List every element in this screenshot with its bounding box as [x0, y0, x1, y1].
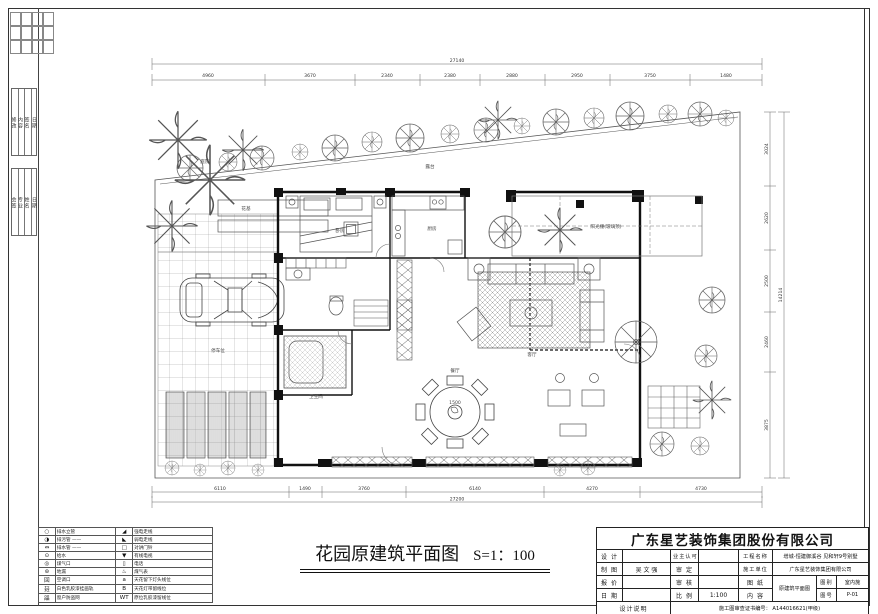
draft-value: 吴 文 强	[623, 563, 671, 576]
svg-text:1490: 1490	[299, 486, 311, 492]
dim-top-labels: 4960 3670 2340 2380 2880 2950 3750 1480 …	[202, 58, 732, 79]
design-label: 设 计	[597, 550, 623, 563]
svg-text:花基: 花基	[241, 205, 251, 212]
approve-label: 审 定	[671, 563, 699, 576]
drawing-title-text: 花园原建筑平面图	[315, 544, 459, 564]
project-value: 增城-恒建御溪谷 见和轩9号别墅	[773, 550, 869, 563]
svg-text:4960: 4960	[202, 73, 214, 79]
company-name: 广东星艺装饰集团股份有限公司	[597, 528, 869, 550]
legend-row: ⇔ 排水管 —— □ 对讲门铃	[39, 544, 213, 552]
svg-text:27200: 27200	[450, 497, 465, 503]
svg-text:27140: 27140	[450, 58, 465, 64]
cable-tv-icon: ▼	[116, 552, 133, 560]
draft-label: 制 图	[597, 563, 623, 576]
svg-text:2380: 2380	[444, 73, 456, 79]
category-value: 室内施	[837, 576, 869, 589]
unit-value: 广东星艺装饰集团有限公司	[773, 563, 869, 576]
dim-bottom-labels: 6110 1490 3760 6140 4270 4730 27200	[214, 486, 707, 503]
carport-units	[166, 392, 266, 458]
svg-text:2500: 2500	[764, 275, 770, 287]
category-label: 图别	[817, 576, 837, 589]
quote-label: 报 价	[597, 576, 623, 589]
svg-text:卫生间: 卫生间	[309, 393, 323, 400]
svg-text:1480: 1480	[720, 73, 732, 79]
floor-drain-icon: ⊚	[39, 568, 56, 576]
svg-text:3760: 3760	[358, 486, 370, 492]
telephone-icon: ▯	[116, 560, 133, 568]
sheet-content-value: 原建筑平面图	[773, 576, 817, 602]
date-value	[623, 589, 671, 602]
hall-cabinets	[286, 258, 388, 326]
svg-text:4270: 4270	[586, 486, 598, 492]
cert-label: 施工图审查证书编号：	[719, 606, 771, 612]
legend-row: 㠭 白色乳胶漆挂画轨 B 天花灯带留线位	[39, 585, 213, 594]
legend-table: ○ 排水立管 ◢ 强电走线 ◑ 排污管 —— ◣ 弱电走线 ⇔ 排水管 —— □…	[38, 527, 213, 603]
sheetno-label: 图号	[817, 589, 837, 602]
legend-row: ⊚ 地漏 ♨ 煤气表	[39, 568, 213, 576]
power-line-icon: ◢	[116, 528, 133, 536]
svg-text:餐厅: 餐厅	[450, 367, 460, 374]
svg-text:3750: 3750	[644, 73, 656, 79]
kitchen-counter	[392, 196, 464, 256]
latex-paint-icon: WT	[116, 594, 133, 603]
cert-value: A144016621(甲级)	[772, 606, 820, 612]
legend-row: ◎ 煤气口 ▯ 电话	[39, 560, 213, 568]
quote-value	[623, 576, 671, 589]
legend-row: 㗊 窗户防盗网 WT 原位乳胶漆留线位	[39, 594, 213, 603]
bed	[286, 196, 386, 252]
svg-text:停车位: 停车位	[211, 347, 225, 354]
sewage-pipe-icon: ◑	[39, 536, 56, 544]
svg-text:2620: 2620	[764, 212, 770, 224]
parasol	[615, 321, 657, 363]
scale-value: 1:100	[699, 589, 739, 602]
light-band-icon: B	[116, 585, 133, 594]
sheetno-value: P-01	[837, 589, 869, 602]
svg-text:卧房: 卧房	[335, 227, 345, 234]
design-value	[623, 550, 671, 563]
svg-text:3670: 3670	[304, 73, 316, 79]
gas-outlet-icon: ◎	[39, 560, 56, 568]
low-voltage-icon: ◣	[116, 536, 133, 544]
svg-text:6140: 6140	[469, 486, 481, 492]
drawing-sheet: 修改 内容 签名 日期 会签 专业 姓名 日期	[0, 0, 878, 614]
paint-rail-icon: 㠭	[39, 585, 56, 594]
svg-text:2950: 2950	[571, 73, 583, 79]
water-supply-icon: ⊙	[39, 552, 56, 560]
svg-text:3875: 3875	[764, 419, 770, 431]
design-note-label: 设计说明	[597, 602, 671, 614]
patio-tables	[548, 374, 604, 437]
dining-table	[416, 376, 494, 448]
svg-text:庭院: 庭院	[200, 158, 210, 165]
window-guard-icon: 㗊	[39, 594, 56, 603]
svg-text:14214: 14214	[778, 288, 784, 303]
svg-text:6110: 6110	[214, 486, 226, 492]
svg-text:客厅: 客厅	[527, 351, 537, 358]
svg-text:厨房: 厨房	[427, 225, 437, 232]
owner-label: 业主认可	[671, 550, 699, 563]
scale-label: 比 例	[671, 589, 699, 602]
title-block: 广东星艺装饰集团股份有限公司 设 计 业主认可 工程名称 增城-恒建御溪谷 见和…	[596, 527, 869, 614]
water-pipe-icon: ⇔	[39, 544, 56, 552]
bathroom	[284, 268, 346, 388]
svg-text:2460: 2460	[764, 336, 770, 348]
svg-text:2880: 2880	[506, 73, 518, 79]
legend-row: ○ 排水立管 ◢ 强电走线	[39, 528, 213, 536]
unit-label: 施工单位	[739, 563, 773, 576]
owner-value	[699, 550, 739, 563]
legend-row: ⊙ 给水 ▼ 有线电视	[39, 552, 213, 560]
planter-grid	[648, 386, 700, 428]
svg-text:2340: 2340	[381, 73, 393, 79]
legend-row: ◑ 排污管 —— ◣ 弱电走线	[39, 536, 213, 544]
svg-text:3024: 3024	[764, 143, 770, 155]
content-label: 内 容	[739, 589, 773, 602]
project-label: 工程名称	[739, 550, 773, 563]
intercom-icon: □	[116, 544, 133, 552]
svg-text:阳光棚(玻璃顶): 阳光棚(玻璃顶)	[590, 223, 621, 230]
cert-number: 施工图审查证书编号： A144016621(甲级)	[671, 602, 869, 614]
gas-meter-icon: ♨	[116, 568, 133, 576]
svg-text:1500: 1500	[449, 400, 461, 406]
drawing-scale: S=1：100	[473, 548, 535, 564]
living-room	[457, 258, 604, 348]
floor-plan: 4960 3670 2340 2380 2880 2950 3750 1480 …	[0, 0, 878, 614]
check-value	[699, 576, 739, 589]
legend-row: 回 空调口 a 天花留下灯头线位	[39, 576, 213, 585]
drawing-title: 花园原建筑平面图S=1：100	[300, 540, 550, 570]
ac-vent-icon: 回	[39, 576, 56, 585]
approve-value	[699, 563, 739, 576]
svg-text:4730: 4730	[695, 486, 707, 492]
check-label: 审 核	[671, 576, 699, 589]
drain-riser-icon: ○	[39, 528, 56, 536]
sheet-label: 图 纸	[739, 576, 773, 589]
ceiling-lamp-icon: a	[116, 576, 133, 585]
trees-top	[177, 102, 734, 181]
date-label: 日 期	[597, 589, 623, 602]
svg-text:露台: 露台	[425, 163, 435, 170]
